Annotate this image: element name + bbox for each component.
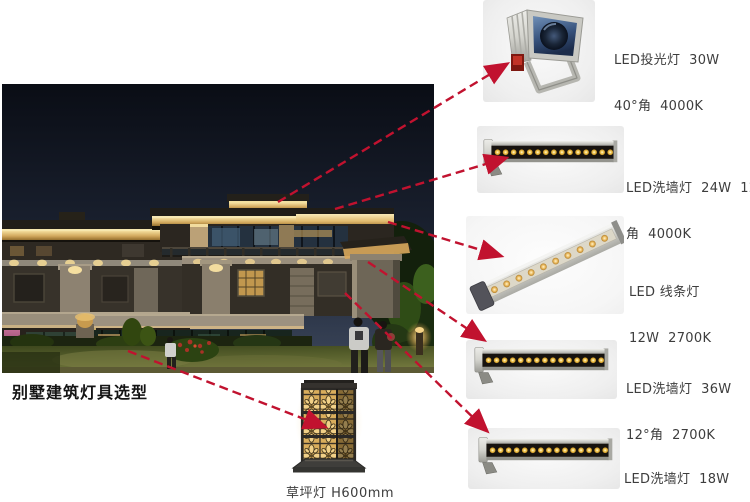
villa-right-block <box>150 194 412 318</box>
led-floodlight-image <box>483 0 595 102</box>
page-title: 别墅建筑灯具选型 <box>12 379 148 403</box>
wall-washer-18w-label: LED洗墙灯 18W 12°角 2700K <box>624 442 729 502</box>
wall-washer-36w-label-line2: 12°角 2700K <box>626 428 731 443</box>
floodlight-label-line2: 40°角 4000K <box>614 99 719 114</box>
led-wall-washer-24w-image <box>481 136 623 178</box>
lawn-lamp-label: 草坪灯 H600mm <box>286 482 394 501</box>
linear-light-label-line1: LED 线条灯 <box>629 285 711 300</box>
lawn-lamp-image <box>286 370 374 476</box>
wall-washer-24w-label-line2: 角 4000K <box>626 227 750 242</box>
led-wall-washer-36w-image <box>472 344 614 386</box>
led-linear-light-image <box>466 216 624 314</box>
wall-washer-18w-label-line1: LED洗墙灯 18W <box>624 472 729 487</box>
linear-light-label-line2: 12W 2700K <box>629 331 711 346</box>
wall-washer-24w-label: LED洗墙灯 24W 12° 角 4000K <box>626 151 750 272</box>
floodlight-label: LED投光灯 30W 40°角 4000K <box>614 23 719 144</box>
led-wall-washer-18w-image <box>476 434 618 476</box>
wall-washer-36w-label-line1: LED洗墙灯 36W <box>626 382 731 397</box>
floodlight-label-line1: LED投光灯 30W <box>614 53 719 68</box>
villa-night-photo <box>2 84 434 373</box>
wall-washer-24w-label-line1: LED洗墙灯 24W 12° <box>626 181 750 196</box>
lighting-selection-diagram: LED投光灯 30W 40°角 4000K LED洗墙灯 24W 12° 角 4… <box>0 0 750 502</box>
